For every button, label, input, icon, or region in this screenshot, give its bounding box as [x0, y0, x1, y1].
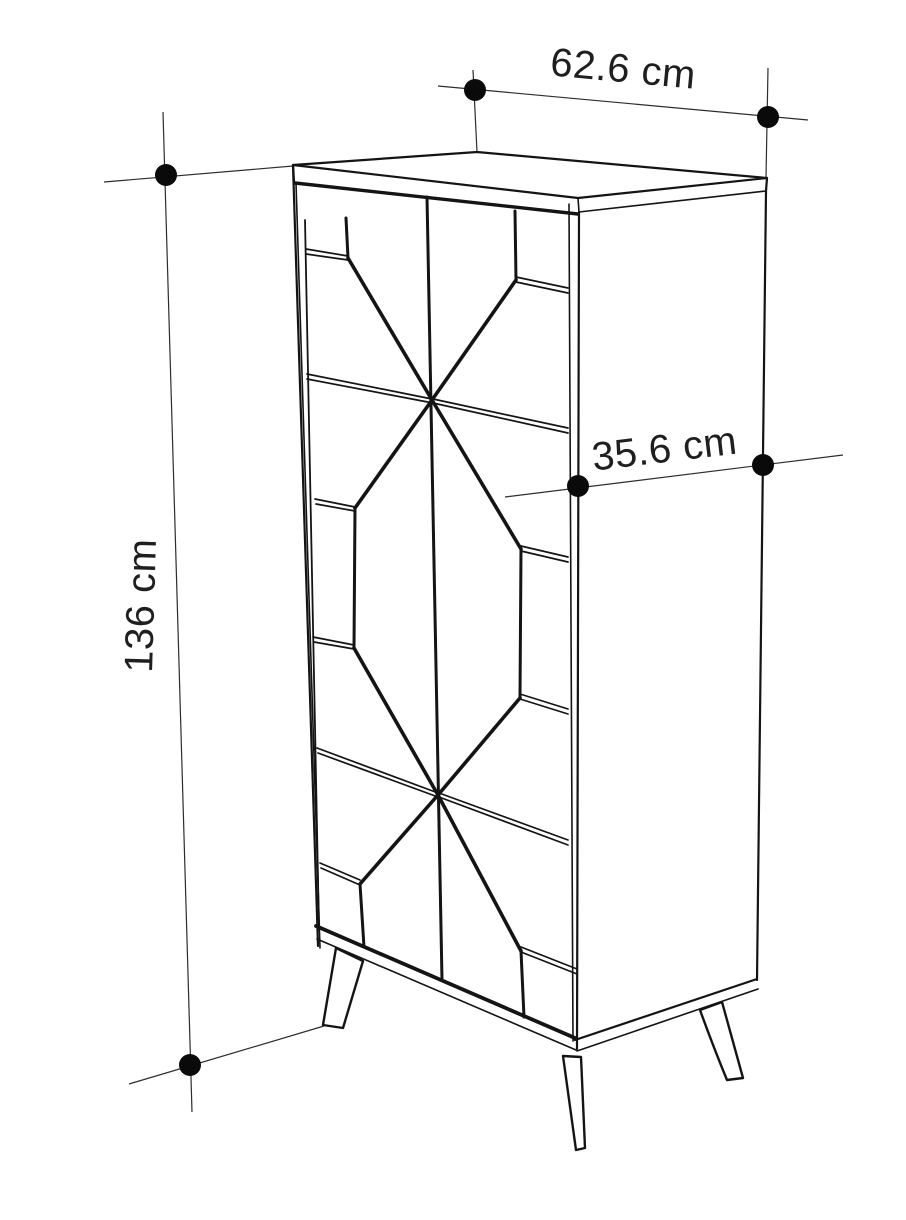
height-extension-top [104, 166, 293, 182]
depth-dot-left [567, 475, 589, 497]
pattern-vertical-left-bottom [360, 884, 364, 947]
width-dimension-label: 62.6 cm [549, 40, 698, 97]
pattern-vertical-right-bottom [521, 951, 524, 1017]
pattern-vertical-ne-top [515, 211, 516, 280]
pattern-vertical-nw-top [346, 218, 348, 258]
back-right-leg [700, 1002, 743, 1080]
height-dot-top [155, 164, 177, 186]
height-dimension-label: 136 cm [117, 538, 165, 673]
furniture-dimension-diagram: 62.6 cm 35.6 cm 136 cm [0, 0, 906, 1220]
width-dot-right [757, 106, 779, 128]
top-slab-corner [578, 198, 579, 212]
cabinet-line-drawing: 62.6 cm 35.6 cm 136 cm [0, 0, 906, 1220]
upper-star-ray-nw [348, 258, 432, 400]
upper-star-ray-ne [432, 280, 516, 400]
pattern-vertical-right-mid [520, 549, 521, 698]
dimension-labels: 62.6 cm 35.6 cm 136 cm [117, 40, 739, 673]
top-slab-right-edge [578, 178, 767, 198]
upper-star-ray-sw [355, 400, 432, 508]
back-right-edge [757, 191, 766, 980]
height-extension-bottom [129, 1026, 324, 1084]
bottom-slab-front [317, 939, 576, 1050]
height-dimension-line [163, 112, 192, 1112]
lower-star-ray-ne [438, 698, 520, 795]
cabinet-legs [323, 948, 743, 1150]
front-right-edge [577, 212, 579, 1049]
lower-star-ray-nw [354, 648, 438, 795]
top-slab-front-edge [293, 165, 578, 198]
width-dot-left [464, 79, 486, 101]
dimension-lines [104, 68, 843, 1112]
front-door-pattern [305, 197, 577, 1017]
height-dot-bottom [179, 1054, 201, 1076]
door-top-edge [295, 183, 578, 214]
front-right-edge-inner [569, 204, 573, 1041]
door-split-line [427, 197, 442, 980]
pattern-double-lines [306, 249, 577, 974]
upper-star-ray-se [432, 400, 521, 549]
lower-star-ray-sw [360, 795, 438, 884]
front-right-leg [563, 1056, 585, 1150]
dimension-dots [155, 79, 779, 1076]
depth-dot-right [752, 454, 774, 476]
pattern-vertical-left-mid [354, 508, 355, 648]
front-left-leg [323, 948, 363, 1028]
